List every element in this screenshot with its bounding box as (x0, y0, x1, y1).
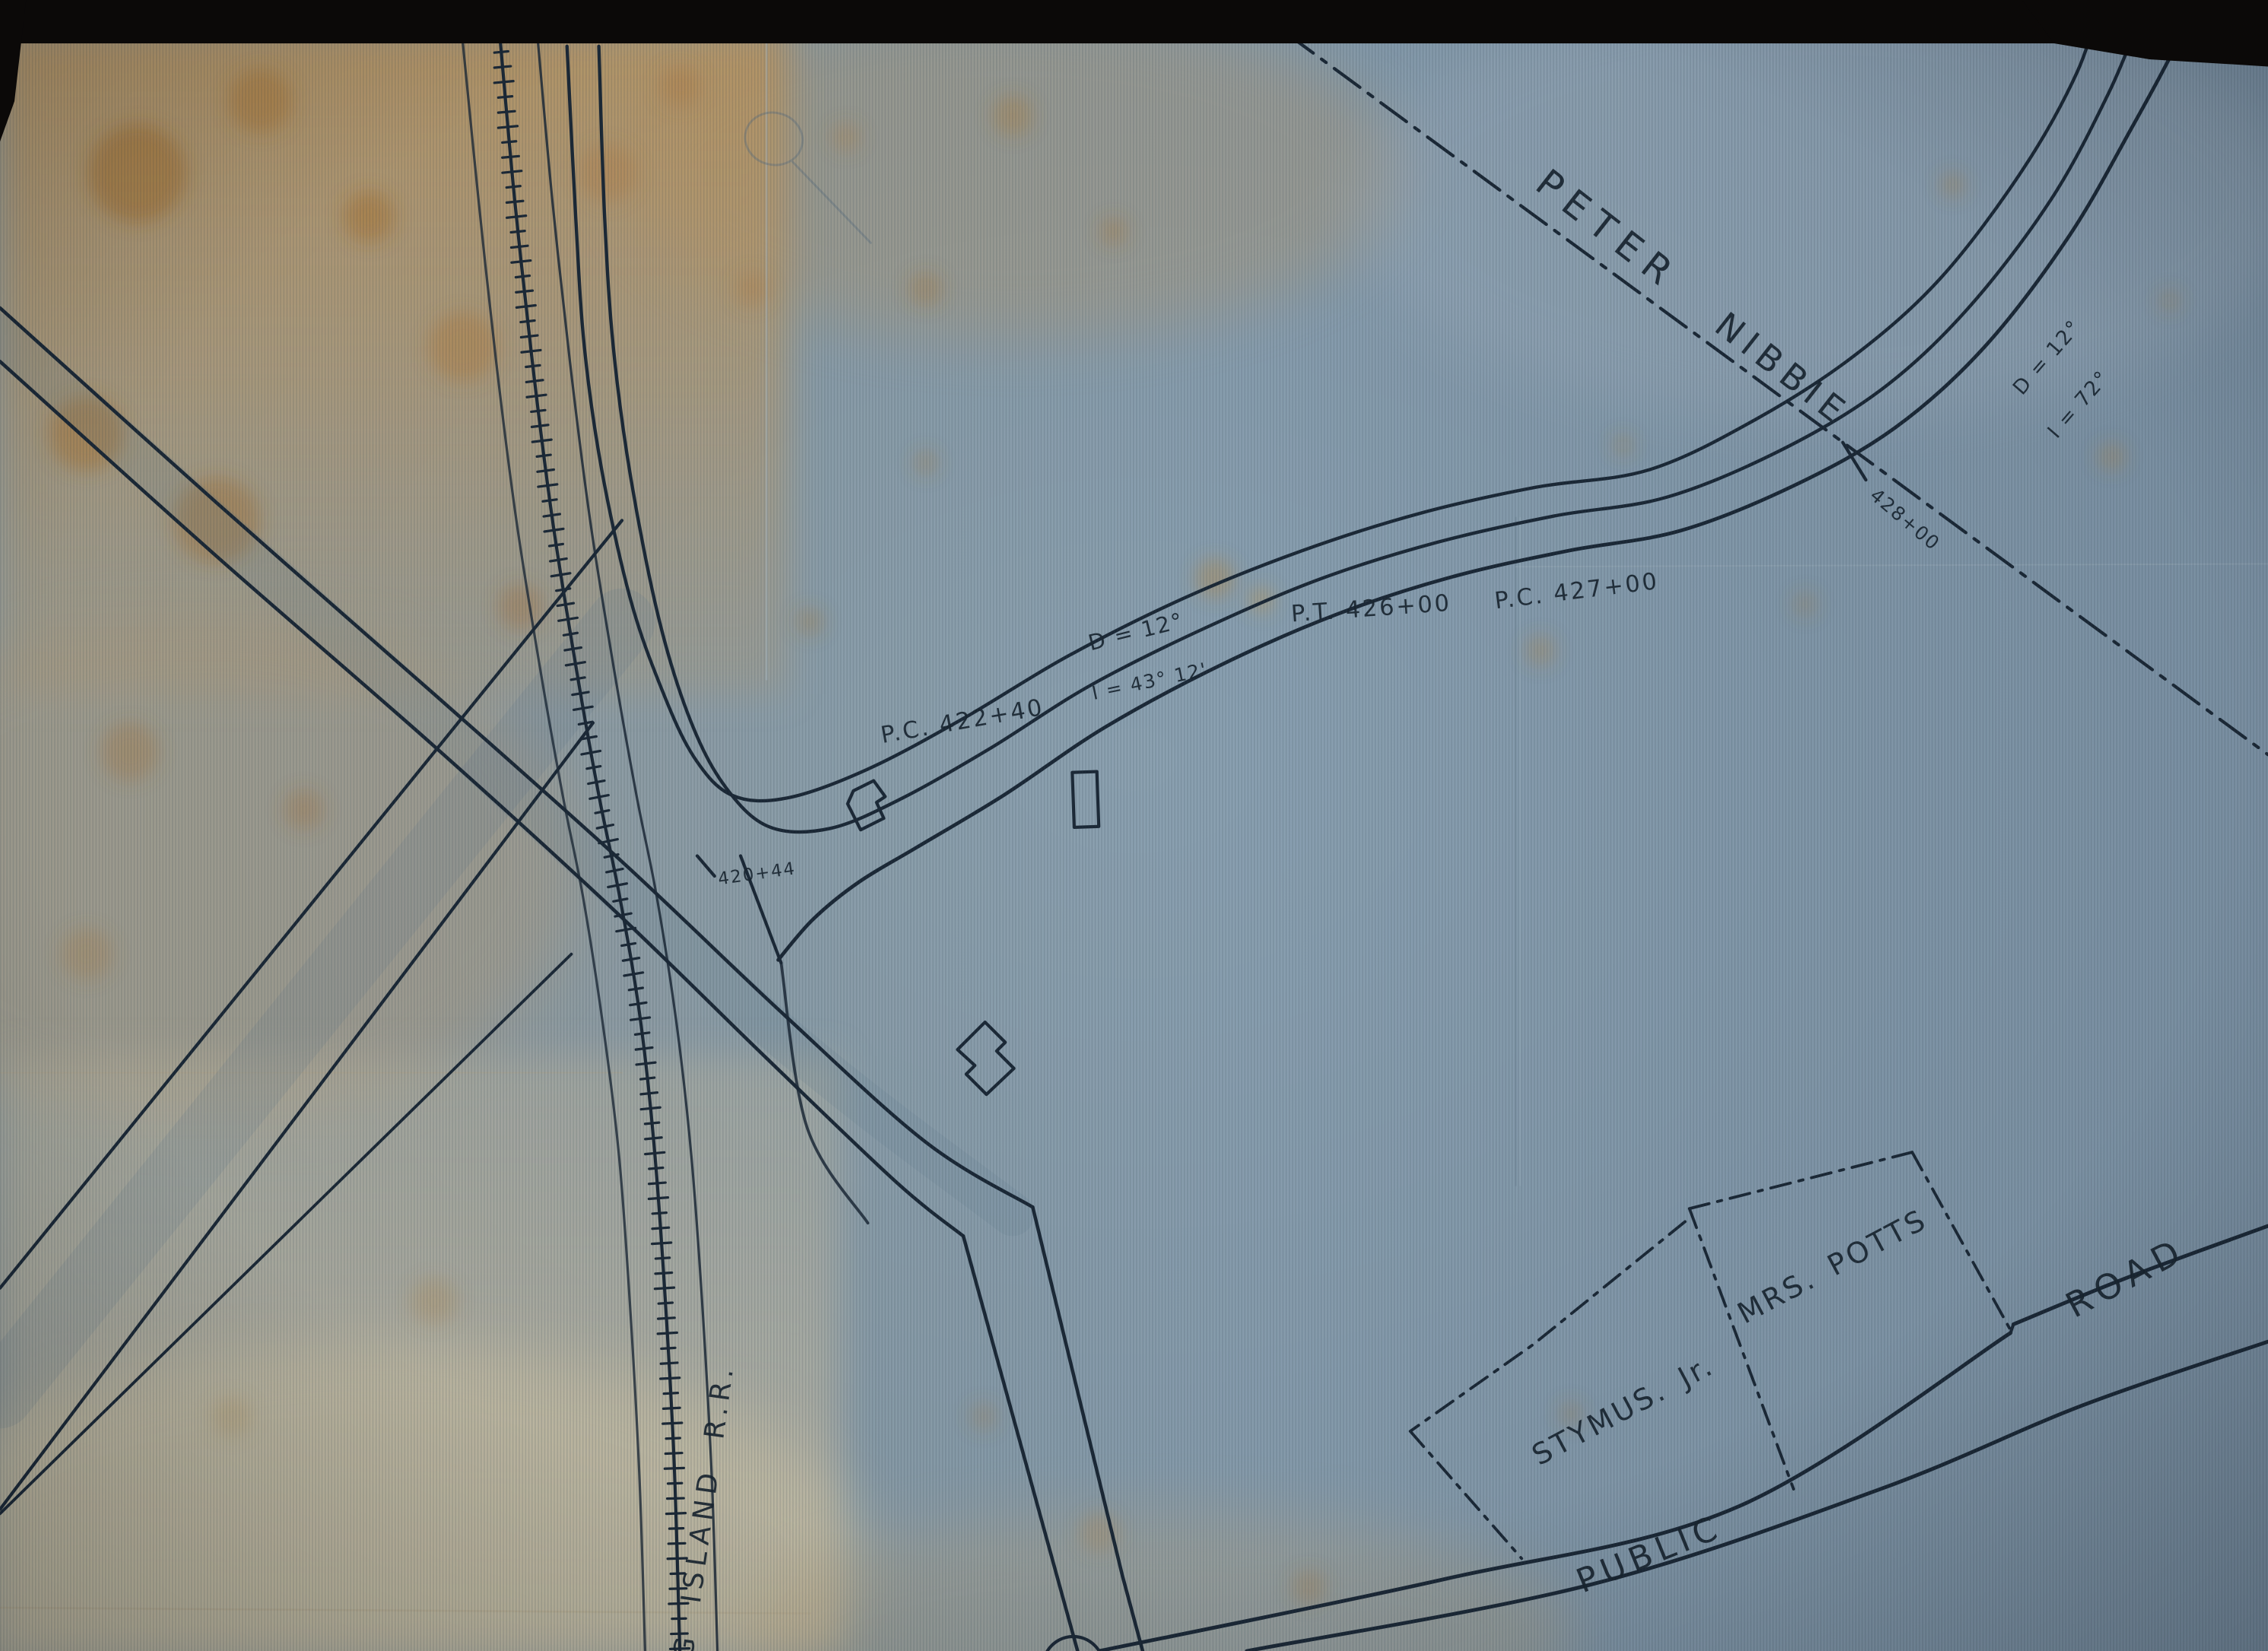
blueprint-map: PETERNIBBIED = 12°I = 72°428+00P.T. 426+… (0, 0, 2268, 1651)
photo-vignette (0, 0, 2268, 1651)
photo-top-bar (0, 0, 2268, 43)
photo-of-blueprint: PETERNIBBIED = 12°I = 72°428+00P.T. 426+… (0, 0, 2268, 1651)
